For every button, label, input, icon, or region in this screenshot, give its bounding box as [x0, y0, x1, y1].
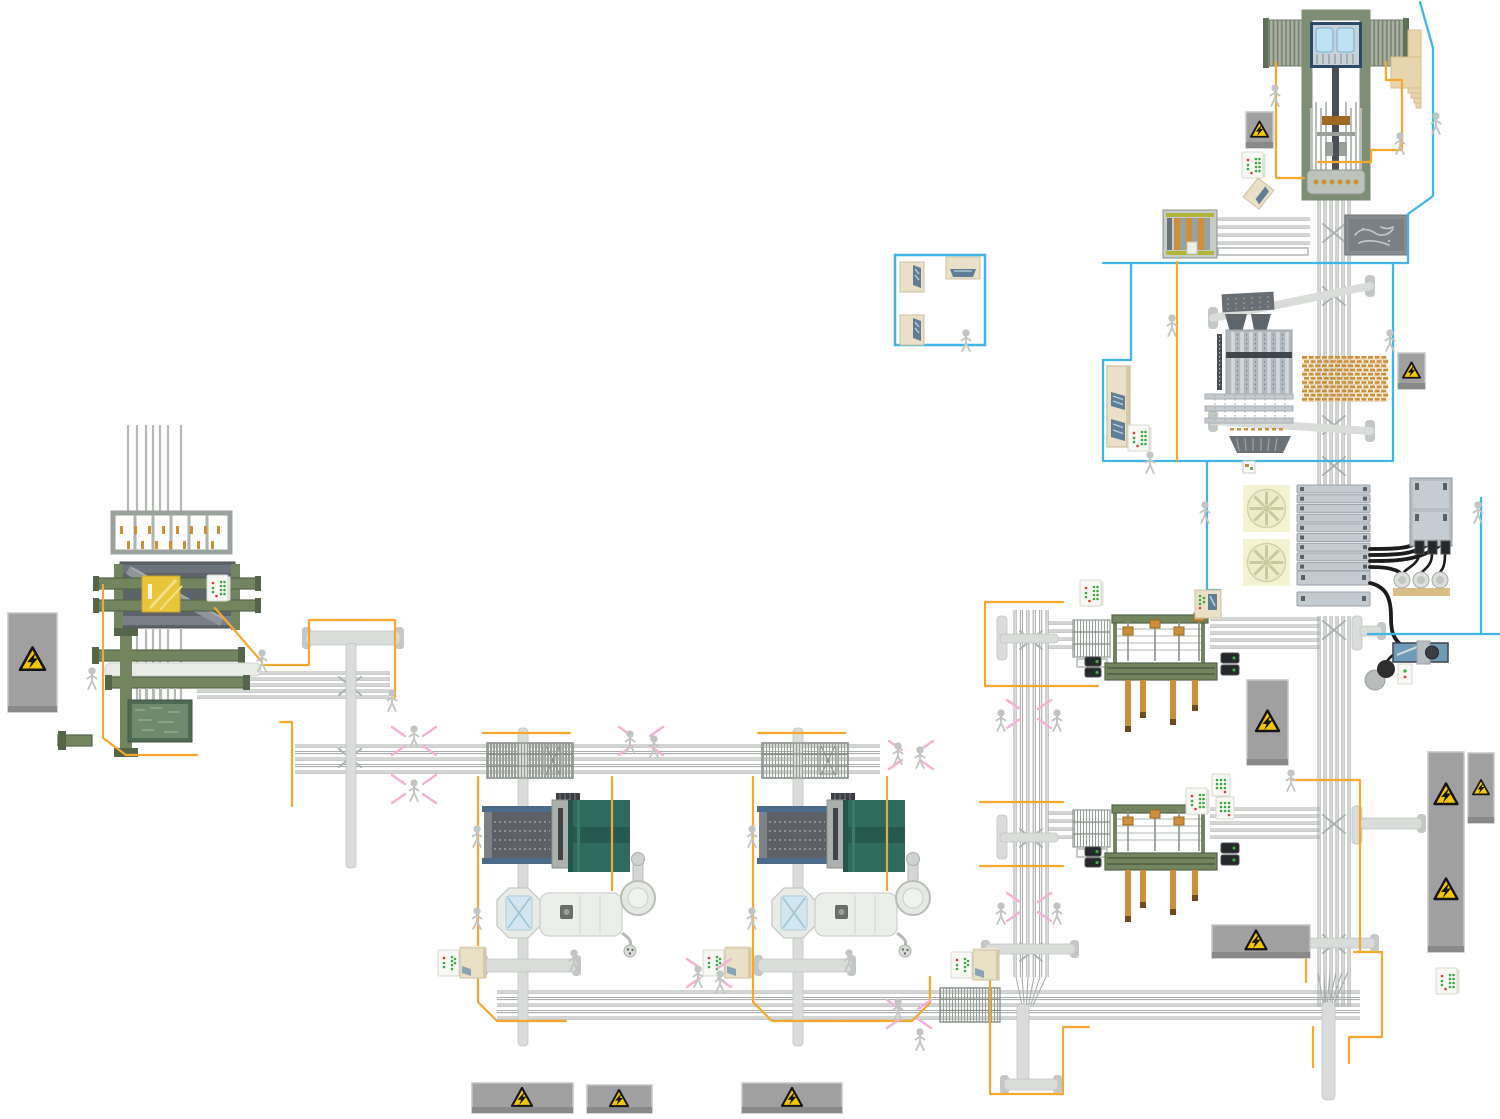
board-trimmer-upper: [1073, 613, 1239, 732]
electrical-hazard-sign: [742, 1083, 842, 1113]
person-icon: [1386, 330, 1395, 351]
electrical-hazard-sign: [472, 1083, 573, 1113]
debarker-drum-line-left: [482, 743, 655, 957]
person-icon: [997, 903, 1006, 924]
person-icon: [1053, 710, 1062, 731]
sticker-stacked-lumber-package: [1302, 356, 1388, 401]
transfer-bar: [1000, 833, 1058, 842]
sorting-bin-rack: [1297, 485, 1370, 606]
transfer-bar: [346, 643, 356, 868]
person-icon: [388, 690, 397, 711]
control-panel-cab_tall: [900, 262, 924, 292]
person-icon: [258, 650, 267, 671]
control-cabinet: [1107, 366, 1130, 447]
grab-head: [1322, 116, 1350, 125]
conveyor-strands: [1213, 218, 1310, 244]
person-icon: [694, 966, 703, 987]
transfer-bar: [1360, 814, 1426, 833]
plant-layout-svg: [0, 0, 1500, 1119]
log-crane-gantry: [1263, 15, 1409, 195]
person-icon: [894, 743, 903, 764]
control-panel-led: [1436, 968, 1460, 994]
fan-unit: [1243, 485, 1290, 532]
person-icon: [916, 1029, 925, 1050]
feeder-module: [1163, 210, 1217, 258]
transfer-bar: [1322, 1002, 1335, 1100]
conveyor-merge: [1318, 972, 1348, 1003]
control-panel-cab_tilt: [1243, 178, 1274, 209]
board-trimmer-lower: [1073, 803, 1239, 922]
person-icon: [1053, 903, 1062, 924]
walkway-path-orange: [280, 722, 292, 806]
control-panel-cab_wide: [946, 257, 980, 279]
control-panel-combo: [438, 946, 486, 978]
electrical-hazard-sign: [1246, 112, 1273, 148]
transfer-bar: [754, 955, 856, 976]
control-panel-cab_tall: [900, 315, 924, 345]
control-panel-led: [1242, 152, 1266, 178]
transfer-bar: [1017, 1004, 1029, 1082]
person-icon: [410, 780, 419, 801]
electrical-hazard-sign: [1398, 353, 1425, 389]
control-panel-led: [1080, 580, 1104, 606]
person-icon: [1432, 113, 1441, 134]
roller-deck-left: [1268, 20, 1306, 66]
transfer-bar: [1360, 622, 1386, 640]
person-icon: [1168, 315, 1177, 336]
conveyor-strands: [1014, 610, 1048, 977]
walkway-path-orange: [1349, 952, 1382, 1063]
person-icon: [1201, 502, 1210, 523]
conveyor-bracket: [1218, 248, 1308, 255]
walkway-path-orange: [841, 977, 930, 1021]
conveyor-strands: [1210, 618, 1320, 648]
control-panel-mini: [1243, 461, 1255, 473]
plant-layout-canvas: [0, 0, 1500, 1119]
person-icon: [916, 747, 925, 768]
electrical-hazard-sign: [1247, 680, 1288, 765]
walkway-boundary-blue: [1207, 461, 1220, 600]
person-icon: [410, 726, 419, 747]
drive-cabinet-with-pumps: [1370, 478, 1452, 643]
person-icon: [1474, 502, 1483, 523]
pump-base: [1393, 588, 1450, 596]
person-icon: [962, 330, 971, 351]
fan-unit: [1243, 539, 1290, 586]
electrical-hazard-sign: [1428, 752, 1464, 952]
person-icon: [1287, 770, 1296, 791]
walkway-path-orange: [1276, 62, 1304, 178]
control-panel-led: [1186, 788, 1210, 814]
cooling-fans: [1243, 485, 1290, 586]
control-panel-grid: [1216, 797, 1234, 819]
log-intake-machine: [58, 425, 261, 757]
person-icon: [997, 710, 1006, 731]
electrical-hazard-sign: [8, 613, 57, 712]
control-panel-pc: [1195, 590, 1221, 618]
transfer-bar: [1000, 634, 1058, 643]
saw-sharpener-unit: [1365, 641, 1448, 690]
control-panel-led: [1128, 425, 1152, 451]
person-icon: [1146, 452, 1155, 473]
status-board: [1345, 215, 1408, 255]
electrical-hazard-sign: [587, 1085, 652, 1113]
control-panel-grid: [1212, 774, 1230, 796]
control-panel-combo: [951, 948, 999, 980]
electrical-hazard-sign: [1212, 925, 1310, 958]
person-icon: [716, 971, 725, 992]
person-icon: [626, 731, 635, 752]
small-control-box: [1398, 664, 1412, 684]
transfer-bar: [1000, 1075, 1062, 1094]
transfer-bar: [479, 955, 581, 976]
electrical-hazard-sign: [1468, 753, 1494, 823]
log-infeed-chains: [128, 425, 181, 515]
debarker-drum-line-right: [757, 743, 930, 957]
control-panel-led: [207, 575, 231, 601]
person-icon: [88, 668, 97, 689]
